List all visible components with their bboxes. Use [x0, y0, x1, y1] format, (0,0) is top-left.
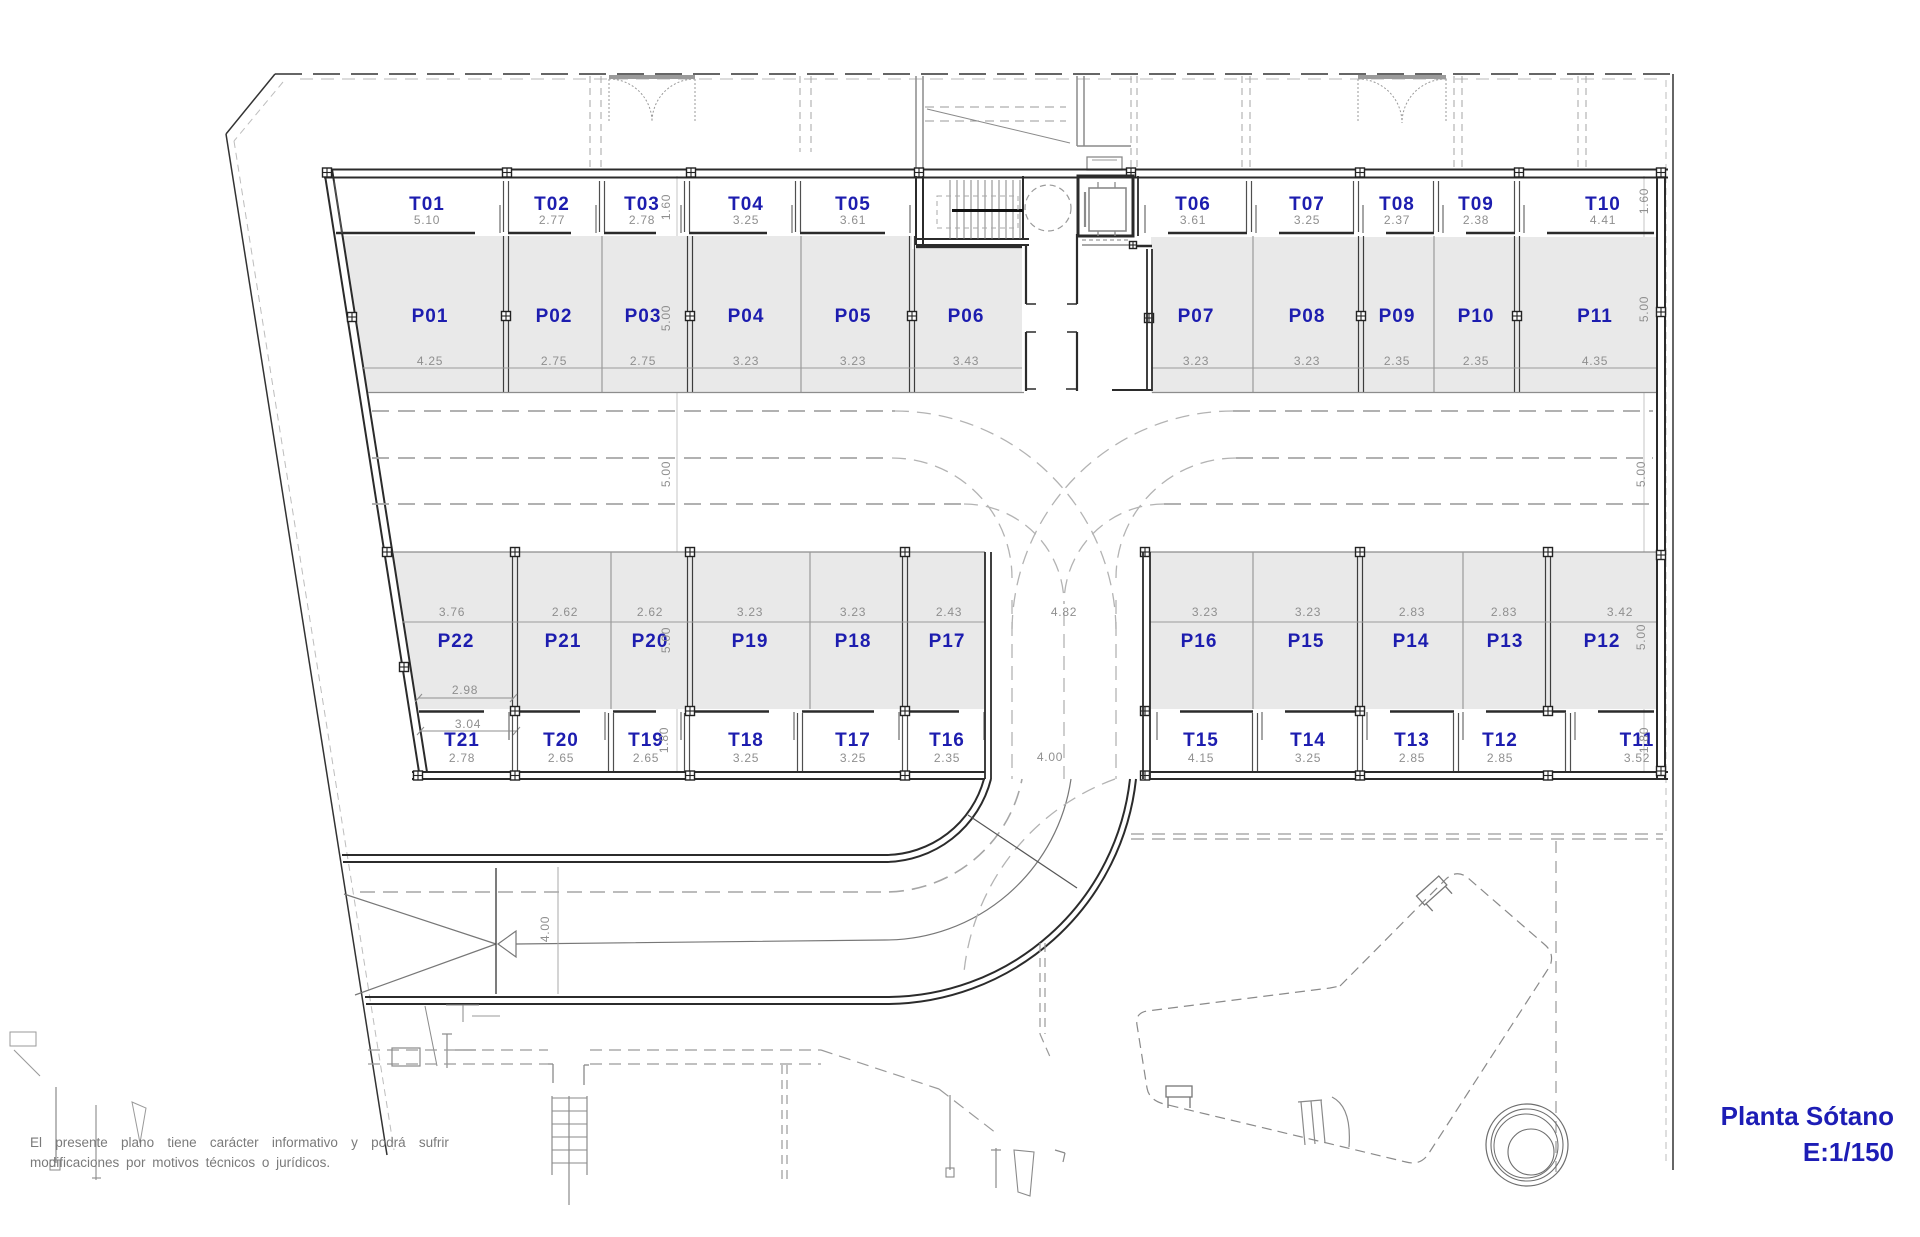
svg-text:2.43: 2.43 — [936, 605, 962, 619]
svg-text:T17: T17 — [835, 730, 871, 751]
svg-text:2.35: 2.35 — [934, 751, 960, 765]
svg-text:3.61: 3.61 — [1180, 213, 1206, 227]
svg-text:3.23: 3.23 — [737, 605, 763, 619]
svg-text:P07: P07 — [1178, 306, 1215, 327]
svg-text:3.61: 3.61 — [840, 213, 866, 227]
svg-text:3.25: 3.25 — [840, 751, 866, 765]
svg-text:5.00: 5.00 — [1634, 624, 1648, 650]
svg-text:2.83: 2.83 — [1491, 605, 1517, 619]
svg-text:T13: T13 — [1394, 730, 1430, 751]
svg-text:P11: P11 — [1577, 306, 1613, 327]
svg-text:P10: P10 — [1458, 306, 1495, 327]
svg-text:2.38: 2.38 — [1463, 213, 1489, 227]
svg-text:T09: T09 — [1458, 194, 1494, 215]
svg-text:3.23: 3.23 — [1294, 354, 1320, 368]
svg-text:3.25: 3.25 — [1295, 751, 1321, 765]
svg-text:T08: T08 — [1379, 194, 1415, 215]
svg-text:T21: T21 — [444, 730, 480, 751]
svg-text:P17: P17 — [929, 631, 966, 652]
svg-text:P05: P05 — [835, 306, 872, 327]
svg-text:T18: T18 — [728, 730, 764, 751]
svg-text:P03: P03 — [625, 306, 662, 327]
svg-text:T01: T01 — [409, 194, 445, 215]
svg-text:P09: P09 — [1379, 306, 1416, 327]
svg-text:T10: T10 — [1585, 194, 1621, 215]
svg-text:Planta Sótano: Planta Sótano — [1721, 1101, 1894, 1131]
svg-text:P19: P19 — [732, 631, 769, 652]
svg-text:2.75: 2.75 — [630, 354, 656, 368]
svg-text:3.76: 3.76 — [439, 605, 465, 619]
svg-text:E:1/150: E:1/150 — [1803, 1137, 1894, 1167]
svg-text:T16: T16 — [929, 730, 965, 751]
svg-text:T05: T05 — [835, 194, 871, 215]
svg-text:4.25: 4.25 — [417, 354, 443, 368]
svg-text:T20: T20 — [543, 730, 579, 751]
svg-text:P04: P04 — [728, 306, 765, 327]
svg-text:P08: P08 — [1289, 306, 1326, 327]
svg-text:3.23: 3.23 — [840, 354, 866, 368]
svg-text:T06: T06 — [1175, 194, 1211, 215]
svg-text:2.85: 2.85 — [1487, 751, 1513, 765]
svg-text:P21: P21 — [545, 631, 582, 652]
svg-text:El presente plano tiene caráct: El presente plano tiene carácter informa… — [30, 1135, 449, 1150]
svg-text:1.60: 1.60 — [659, 194, 673, 220]
svg-text:1.60: 1.60 — [1637, 188, 1651, 214]
svg-text:2.83: 2.83 — [1399, 605, 1425, 619]
svg-text:T04: T04 — [728, 194, 764, 215]
svg-text:3.23: 3.23 — [1295, 605, 1321, 619]
svg-text:5.00: 5.00 — [659, 461, 673, 487]
svg-text:4.00: 4.00 — [1037, 750, 1063, 764]
svg-text:2.98: 2.98 — [452, 683, 478, 697]
svg-text:T03: T03 — [624, 194, 660, 215]
svg-text:2.75: 2.75 — [541, 354, 567, 368]
svg-text:2.62: 2.62 — [552, 605, 578, 619]
svg-text:4.35: 4.35 — [1582, 354, 1608, 368]
svg-text:2.78: 2.78 — [629, 213, 655, 227]
svg-text:2.62: 2.62 — [637, 605, 663, 619]
svg-text:T14: T14 — [1290, 730, 1326, 751]
svg-text:P06: P06 — [948, 306, 985, 327]
svg-text:P02: P02 — [536, 306, 573, 327]
svg-text:2.35: 2.35 — [1463, 354, 1489, 368]
svg-text:3.23: 3.23 — [733, 354, 759, 368]
svg-text:P18: P18 — [835, 631, 872, 652]
svg-text:T07: T07 — [1289, 194, 1325, 215]
svg-text:T12: T12 — [1482, 730, 1518, 751]
svg-text:1.80: 1.80 — [657, 727, 671, 753]
svg-text:2.78: 2.78 — [449, 751, 475, 765]
svg-text:T02: T02 — [534, 194, 570, 215]
svg-text:2.85: 2.85 — [1399, 751, 1425, 765]
svg-text:3.25: 3.25 — [733, 751, 759, 765]
svg-text:5.10: 5.10 — [414, 213, 440, 227]
svg-text:3.25: 3.25 — [733, 213, 759, 227]
svg-text:4.82: 4.82 — [1051, 605, 1077, 619]
svg-text:P12: P12 — [1584, 631, 1621, 652]
svg-text:5.00: 5.00 — [659, 627, 673, 653]
svg-text:3.23: 3.23 — [1183, 354, 1209, 368]
svg-text:1.80: 1.80 — [1637, 727, 1651, 753]
svg-text:3.42: 3.42 — [1607, 605, 1633, 619]
svg-text:4.41: 4.41 — [1590, 213, 1616, 227]
svg-text:modificaciones por motivos téc: modificaciones por motivos técnicos o ju… — [30, 1155, 330, 1170]
svg-text:P22: P22 — [438, 631, 475, 652]
svg-text:P16: P16 — [1181, 631, 1218, 652]
svg-text:P14: P14 — [1393, 631, 1430, 652]
svg-text:3.04: 3.04 — [455, 717, 481, 731]
svg-text:2.37: 2.37 — [1384, 213, 1410, 227]
svg-text:2.35: 2.35 — [1384, 354, 1410, 368]
svg-text:3.43: 3.43 — [953, 354, 979, 368]
svg-text:3.23: 3.23 — [1192, 605, 1218, 619]
svg-text:P13: P13 — [1487, 631, 1524, 652]
svg-text:2.77: 2.77 — [539, 213, 565, 227]
svg-text:P01: P01 — [412, 306, 449, 327]
svg-text:5.00: 5.00 — [1637, 296, 1651, 322]
svg-text:3.25: 3.25 — [1294, 213, 1320, 227]
svg-text:T15: T15 — [1183, 730, 1219, 751]
svg-text:5.00: 5.00 — [659, 305, 673, 331]
svg-text:2.65: 2.65 — [548, 751, 574, 765]
svg-text:2.65: 2.65 — [633, 751, 659, 765]
svg-text:3.23: 3.23 — [840, 605, 866, 619]
svg-text:5.00: 5.00 — [1634, 461, 1648, 487]
svg-text:P15: P15 — [1288, 631, 1325, 652]
svg-text:4.00: 4.00 — [538, 916, 552, 942]
svg-text:4.15: 4.15 — [1188, 751, 1214, 765]
